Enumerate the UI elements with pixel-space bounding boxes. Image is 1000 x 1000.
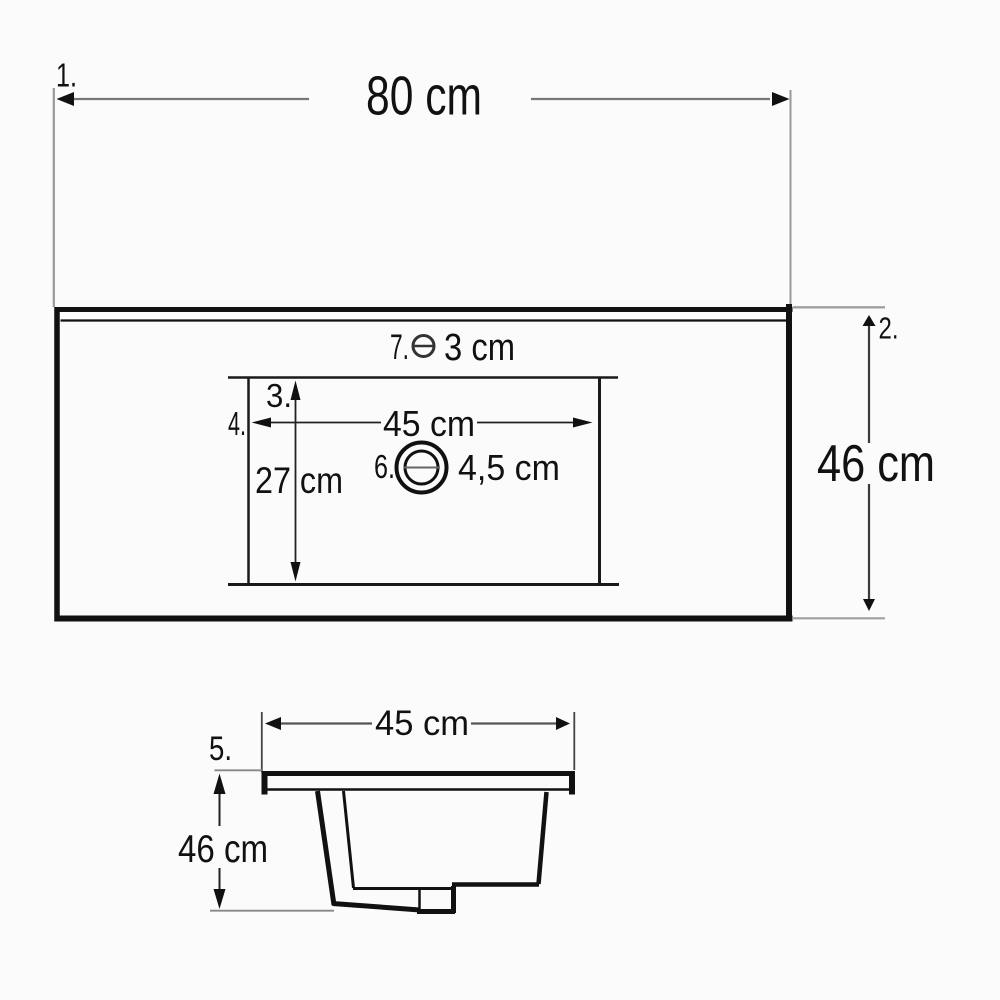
svg-text:3 cm: 3 cm xyxy=(444,327,515,369)
svg-text:2.: 2. xyxy=(879,311,899,346)
svg-text:45 cm: 45 cm xyxy=(383,403,475,444)
svg-text:45 cm: 45 cm xyxy=(375,704,469,743)
svg-text:4,5 cm: 4,5 cm xyxy=(458,447,560,488)
svg-text:27 cm: 27 cm xyxy=(255,460,343,501)
svg-text:46 cm: 46 cm xyxy=(817,435,935,493)
svg-text:3.: 3. xyxy=(266,377,292,414)
svg-text:4.: 4. xyxy=(228,405,246,442)
svg-text:5.: 5. xyxy=(209,730,232,768)
svg-text:6.: 6. xyxy=(374,448,395,485)
svg-text:80 cm: 80 cm xyxy=(366,65,482,127)
svg-text:46 cm: 46 cm xyxy=(178,828,268,871)
svg-text:7.: 7. xyxy=(390,328,409,367)
svg-text:1.: 1. xyxy=(56,57,77,94)
